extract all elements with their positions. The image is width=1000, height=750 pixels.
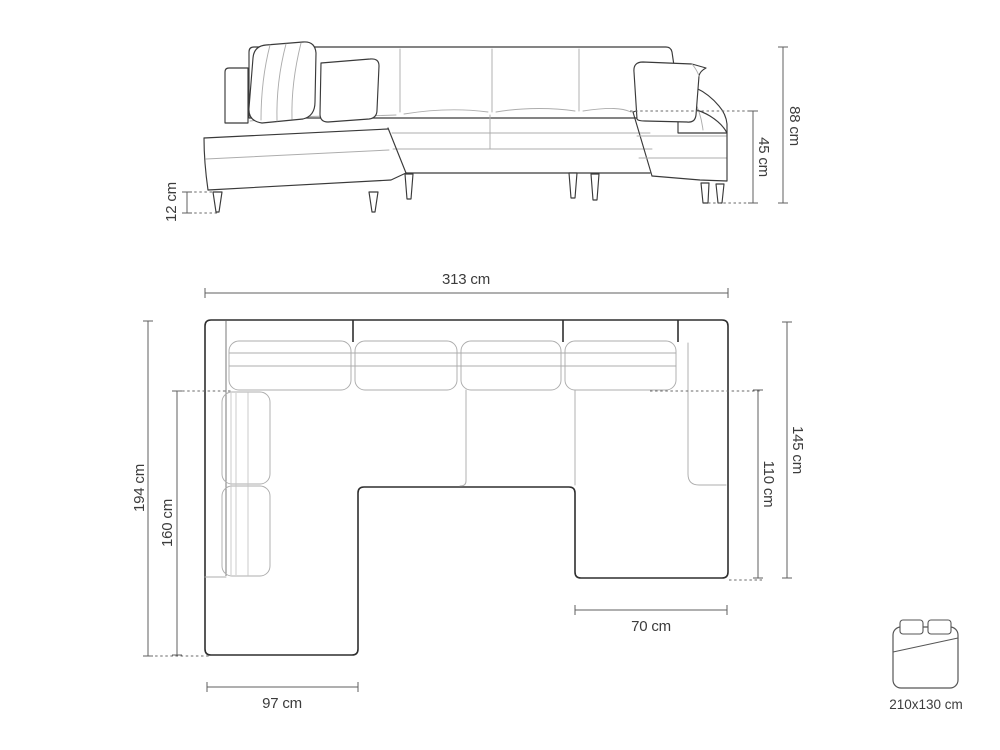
front-center-left-edge <box>388 128 406 173</box>
dim-left-side-depth: 194 cm <box>131 321 153 656</box>
dim-left-chaise-width: 97 cm <box>207 682 358 712</box>
front-view: 12 cm 45 cm 88 cm <box>163 42 803 222</box>
dim-label-overall-height: 88 cm <box>786 106 803 146</box>
front-right-chaise-bottom <box>652 176 727 181</box>
dim-line <box>205 288 728 298</box>
dim-overall-height: 88 cm <box>778 47 803 203</box>
leg <box>591 174 599 200</box>
dim-label-left-chaise-width: 97 cm <box>262 695 302 712</box>
sleeping-area-label: 210x130 cm <box>889 697 963 712</box>
dim-right-side-depth: 145 cm <box>782 322 806 578</box>
bed-mattress <box>893 627 958 688</box>
dim-line <box>575 605 727 615</box>
leg <box>716 184 724 203</box>
dim-right-chaise-width: 70 cm <box>575 605 727 635</box>
dim-leg-height: 12 cm <box>163 182 219 222</box>
sofa-bed-icon: 210x130 cm <box>889 620 963 712</box>
dim-label-leg-height: 12 cm <box>163 182 180 222</box>
diagram-svg: 12 cm 45 cm 88 cm <box>0 0 1000 750</box>
dim-label-left-depth: 194 cm <box>131 464 148 512</box>
leg <box>701 183 709 203</box>
dim-label-right-chaise-width: 70 cm <box>631 618 671 635</box>
front-left-chaise-top <box>204 129 388 138</box>
leg <box>569 173 577 198</box>
pillow-left-large <box>249 42 316 123</box>
dim-line <box>207 682 358 692</box>
dim-label-left-chaise-length: 160 cm <box>159 499 176 547</box>
dim-right-chaise-length: 110 cm <box>753 390 777 578</box>
dim-line <box>182 192 192 213</box>
front-left-chaise-left <box>204 138 208 190</box>
sofa-dimension-diagram: 12 cm 45 cm 88 cm <box>0 0 1000 750</box>
dim-label-right-chaise-length: 110 cm <box>760 461 777 508</box>
leg <box>405 174 413 199</box>
front-left-chaise-band <box>206 150 389 159</box>
plan-view: 313 cm 194 cm 160 cm 145 cm 110 cm 70 cm… <box>131 271 806 712</box>
leg <box>369 192 378 212</box>
plan-silhouette <box>205 320 728 655</box>
front-left-armrest <box>225 68 248 123</box>
dim-label-seat-height: 45 cm <box>755 137 772 177</box>
leg <box>213 192 222 212</box>
dim-label-right-depth: 145 cm <box>789 426 806 474</box>
dim-left-chaise-length: 160 cm <box>159 391 182 655</box>
pillow-right <box>634 62 706 122</box>
pillow-left-small <box>320 59 379 122</box>
dim-label-overall-width: 313 cm <box>442 271 490 288</box>
bed-pillow-right <box>928 620 951 634</box>
bed-pillow-left <box>900 620 923 634</box>
front-legs <box>213 173 724 212</box>
dim-overall-width: 313 cm <box>205 271 728 298</box>
front-left-chaise-bottom <box>208 173 406 190</box>
